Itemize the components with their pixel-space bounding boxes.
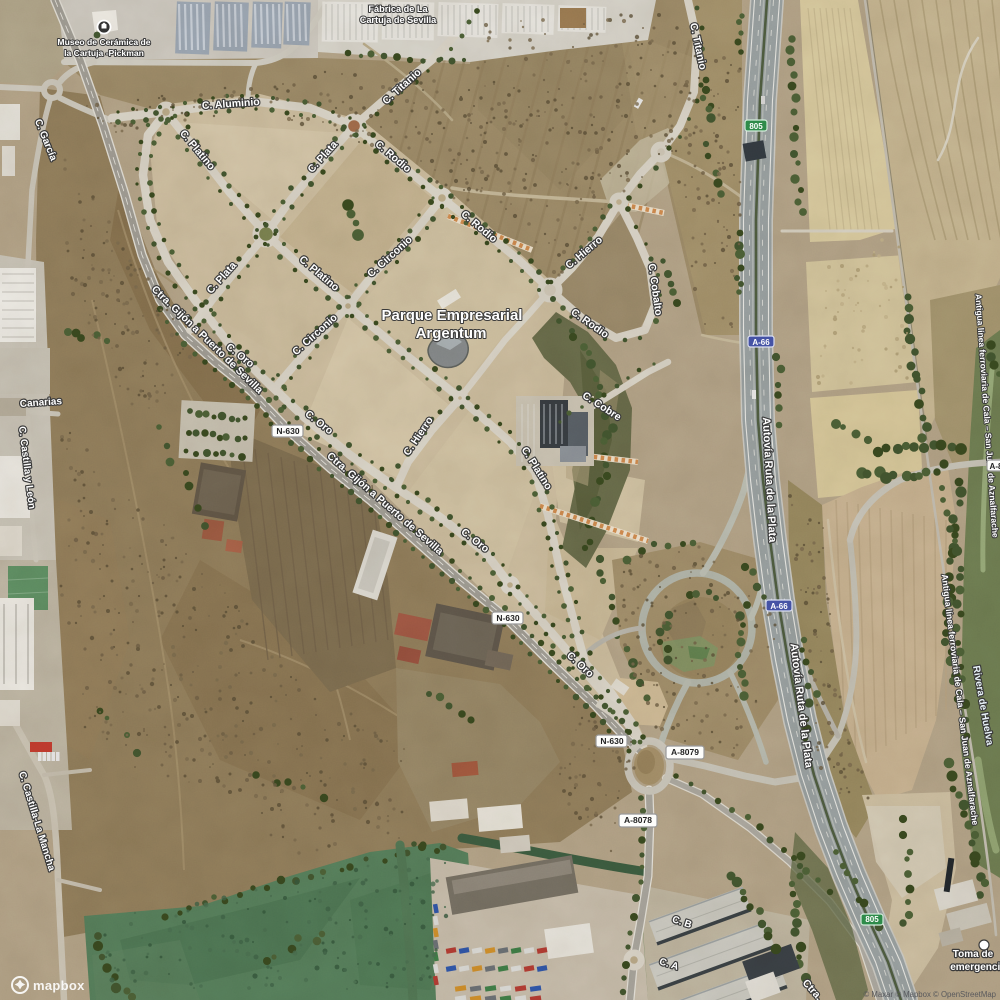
svg-text:Fábrica de La: Fábrica de La [368, 4, 428, 14]
svg-text:N-630: N-630 [276, 426, 299, 436]
svg-text:A-8: A-8 [990, 462, 1000, 471]
svg-text:805: 805 [865, 915, 879, 924]
svg-text:Toma de: Toma de [953, 949, 994, 960]
svg-text:Argentum: Argentum [416, 325, 487, 342]
svg-text:emergencia: emergencia [950, 962, 1000, 973]
svg-text:N-630: N-630 [600, 736, 623, 746]
svg-text:805: 805 [749, 122, 763, 131]
svg-text:la Cartuja -Pickman: la Cartuja -Pickman [64, 48, 144, 58]
svg-text:mapbox: mapbox [33, 978, 85, 993]
svg-text:© Maxar © Mapbox © OpenStreetM: © Maxar © Mapbox © OpenStreetMap [863, 990, 996, 999]
svg-text:Cartuja de Sevilla: Cartuja de Sevilla [360, 15, 437, 25]
svg-text:A-8078: A-8078 [624, 815, 652, 825]
svg-text:A-66: A-66 [770, 602, 788, 611]
svg-text:Parque Empresarial: Parque Empresarial [382, 307, 523, 324]
svg-text:Museo de Cerámica de: Museo de Cerámica de [57, 37, 150, 47]
svg-text:A-66: A-66 [752, 338, 770, 347]
svg-text:N-630: N-630 [496, 613, 519, 623]
svg-text:A-8079: A-8079 [671, 747, 699, 757]
